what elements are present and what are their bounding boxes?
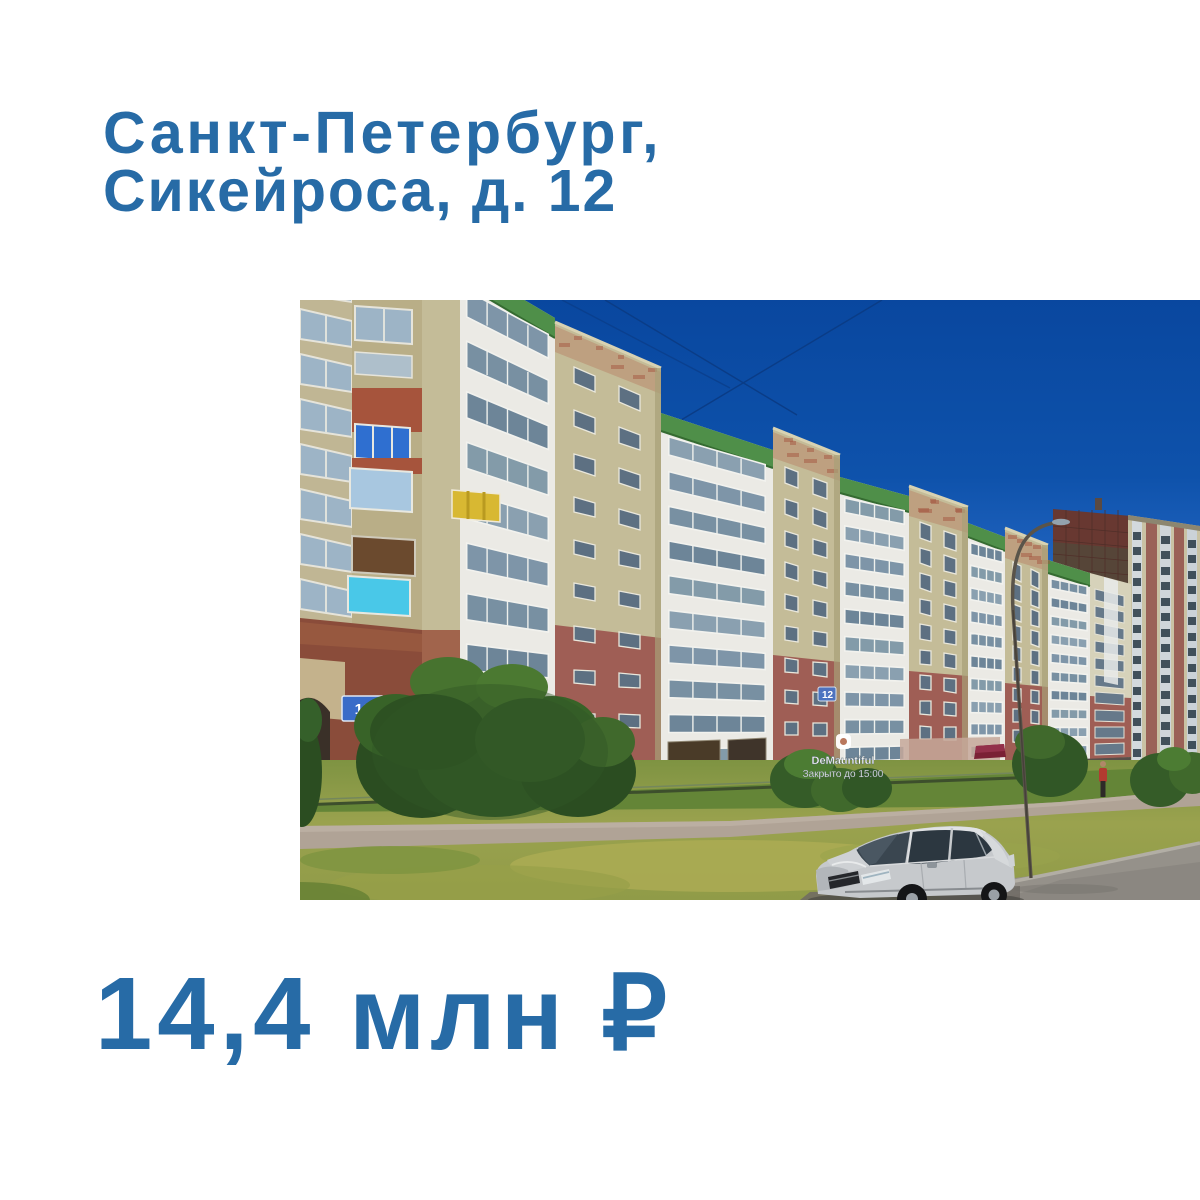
svg-text:12: 12 [822, 690, 834, 701]
svg-text:Закрыто до 15:00: Закрыто до 15:00 [803, 769, 884, 780]
svg-text:DeMauntiful: DeMauntiful [812, 755, 875, 767]
